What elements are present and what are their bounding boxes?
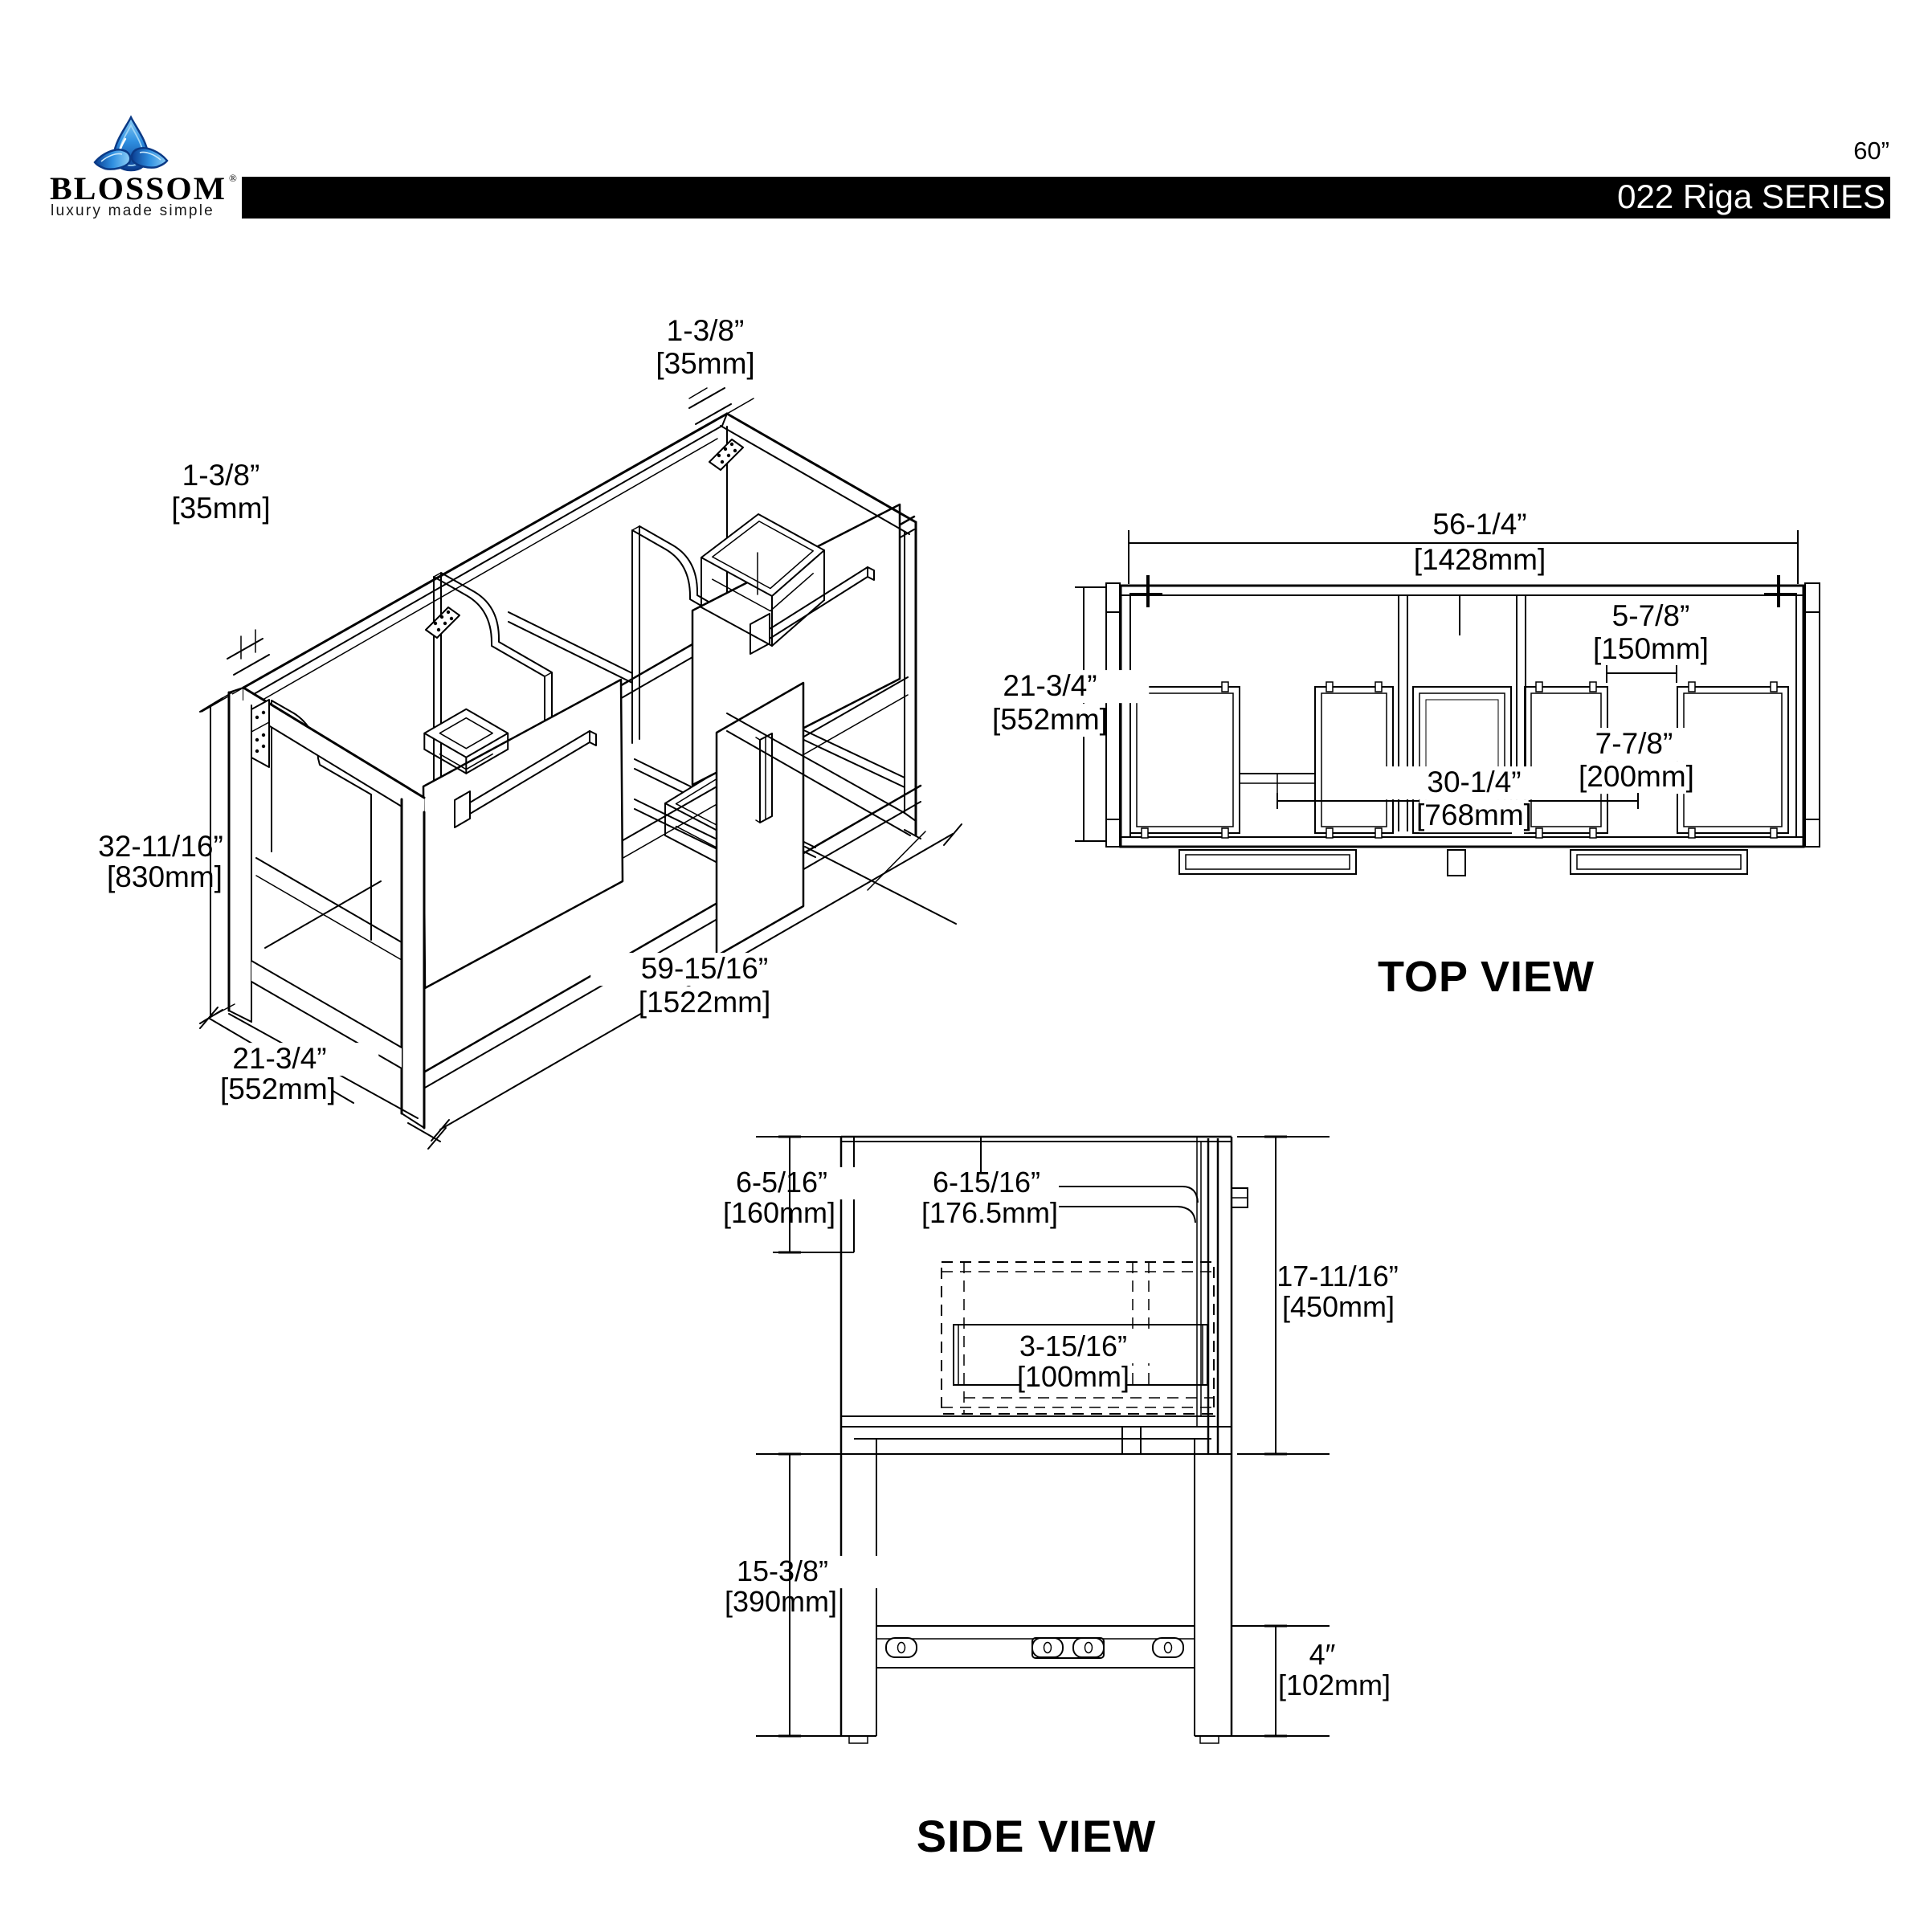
svg-text:[176.5mm]: [176.5mm] (921, 1196, 1058, 1229)
svg-text:[1428mm]: [1428mm] (1414, 543, 1546, 576)
svg-text:6-15/16”: 6-15/16” (933, 1166, 1040, 1199)
svg-text:[1522mm]: [1522mm] (639, 986, 771, 1019)
svg-text:luxury made simple: luxury made simple (51, 202, 214, 219)
svg-text:022 Riga SERIES: 022 Riga SERIES (1617, 178, 1885, 215)
svg-text:6-5/16”: 6-5/16” (736, 1166, 827, 1199)
svg-text:[35mm]: [35mm] (171, 492, 270, 525)
svg-text:59-15/16”: 59-15/16” (641, 952, 768, 985)
svg-text:30-1/4”: 30-1/4” (1427, 766, 1521, 799)
svg-text:[552mm]: [552mm] (992, 703, 1108, 736)
svg-text:4″: 4″ (1309, 1638, 1336, 1671)
svg-text:[768mm]: [768mm] (1416, 799, 1532, 831)
svg-text:TOP VIEW: TOP VIEW (1378, 953, 1595, 1001)
svg-text:3-15/16”: 3-15/16” (1019, 1330, 1127, 1362)
svg-text:1-3/8”: 1-3/8” (182, 459, 260, 492)
svg-text:1-3/8”: 1-3/8” (667, 314, 745, 347)
svg-text:[830mm]: [830mm] (107, 860, 223, 893)
svg-text:[160mm]: [160mm] (723, 1196, 835, 1229)
svg-text:21-3/4”: 21-3/4” (1003, 669, 1097, 702)
svg-text:[150mm]: [150mm] (1593, 632, 1709, 665)
svg-text:SIDE VIEW: SIDE VIEW (917, 1811, 1156, 1861)
svg-text:7-7/8”: 7-7/8” (1595, 727, 1673, 760)
svg-text:[100mm]: [100mm] (1017, 1360, 1129, 1393)
svg-text:[450mm]: [450mm] (1282, 1290, 1395, 1323)
svg-text:®: ® (229, 172, 237, 184)
svg-text:32-11/16”: 32-11/16” (98, 830, 223, 863)
svg-text:[390mm]: [390mm] (725, 1585, 837, 1618)
svg-text:[552mm]: [552mm] (220, 1072, 336, 1105)
svg-text:[102mm]: [102mm] (1278, 1669, 1391, 1701)
svg-text:15-3/8”: 15-3/8” (737, 1554, 828, 1587)
svg-text:60”: 60” (1853, 137, 1889, 165)
svg-text:BLOSSOM: BLOSSOM (50, 170, 227, 206)
svg-text:56-1/4”: 56-1/4” (1432, 508, 1526, 541)
svg-text:21-3/4”: 21-3/4” (232, 1042, 326, 1075)
svg-text:[35mm]: [35mm] (656, 347, 754, 380)
svg-text:[200mm]: [200mm] (1579, 760, 1694, 793)
svg-text:5-7/8”: 5-7/8” (1612, 599, 1690, 632)
svg-text:17-11/16”: 17-11/16” (1276, 1260, 1398, 1293)
